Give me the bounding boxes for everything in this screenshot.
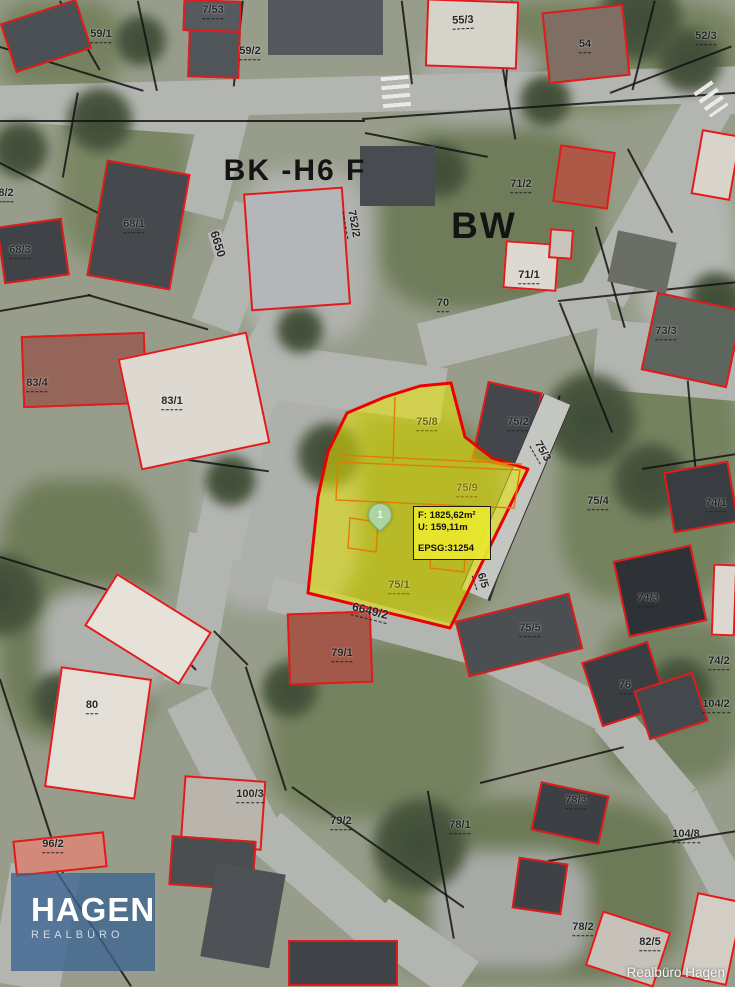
map-label: 76 [619,680,631,694]
map-label: 75/8 [416,417,437,431]
map-label: 75/5 [519,623,540,637]
map-label: 55/3 [452,15,474,30]
map-label: 68/1 [123,219,144,233]
logo-title: HAGEN [31,893,155,926]
map-label: 54 [579,39,591,53]
map-label: 78/3 [565,795,586,809]
map-label: 71/2 [510,179,531,193]
map-label: 79/2 [330,816,351,830]
map-label: 83/4 [26,378,47,392]
map-label: 104/2 [702,699,730,713]
map-label: 79/1 [331,648,352,662]
map-label: 73/3 [655,326,676,340]
map-label: 80 [86,700,98,714]
marker-number: 1 [369,504,391,526]
map-label: 75/1 [388,580,409,594]
perimeter-value: U: 159,11m [418,522,486,534]
map-label: 75/4 [587,496,608,510]
epsg-value: EPSG:31254 [418,543,486,555]
map-label: 74/1 [705,498,726,512]
map-label: 68/3 [9,245,30,259]
map-label: 59/2 [239,46,260,60]
map-label: 7/53 [202,5,223,19]
map-label: 75/2 [507,417,528,431]
map-label: 752/2 [343,209,361,238]
map-attribution: Realbüro Hagen [627,965,725,980]
map-label: 74/3 [637,593,658,607]
map-label: 70 [437,298,449,312]
map-label: 104/8 [672,829,700,843]
map-label: 6/5 [472,572,490,591]
map-label: 71/1 [518,270,539,284]
map-label: 83/1 [161,396,182,410]
map-label: BW [451,205,517,247]
logo-subtitle: REALBÜRO [31,929,155,941]
cadastral-aerial-map: 59/17/5359/255/35452/3BK -H6 FBW68/168/3… [0,0,735,987]
area-value: F: 1825,62m² [418,510,486,522]
parcel-labels-layer: 59/17/5359/255/35452/3BK -H6 FBW68/168/3… [0,0,735,987]
map-label: 75/9 [456,483,477,497]
map-label: 100/3 [236,789,264,803]
hagen-watermark-logo: HAGEN REALBÜRO [11,873,155,971]
map-label: 82/5 [639,937,660,951]
map-label: 6649/2 [350,600,389,623]
map-label: 78/1 [449,820,470,834]
map-label: BK -H6 F [224,154,367,188]
map-label: 96/2 [42,839,63,853]
map-label: 74/2 [708,656,729,670]
map-label: 78/2 [572,922,593,936]
measurement-info-box: F: 1825,62m² U: 159,11m EPSG:31254 [413,506,491,560]
map-label: 6650 [207,229,228,259]
map-label: 59/1 [90,29,111,43]
map-label: 52/3 [695,31,716,45]
map-label: 8/2 [0,188,14,202]
map-label: 75/3 [530,439,552,464]
